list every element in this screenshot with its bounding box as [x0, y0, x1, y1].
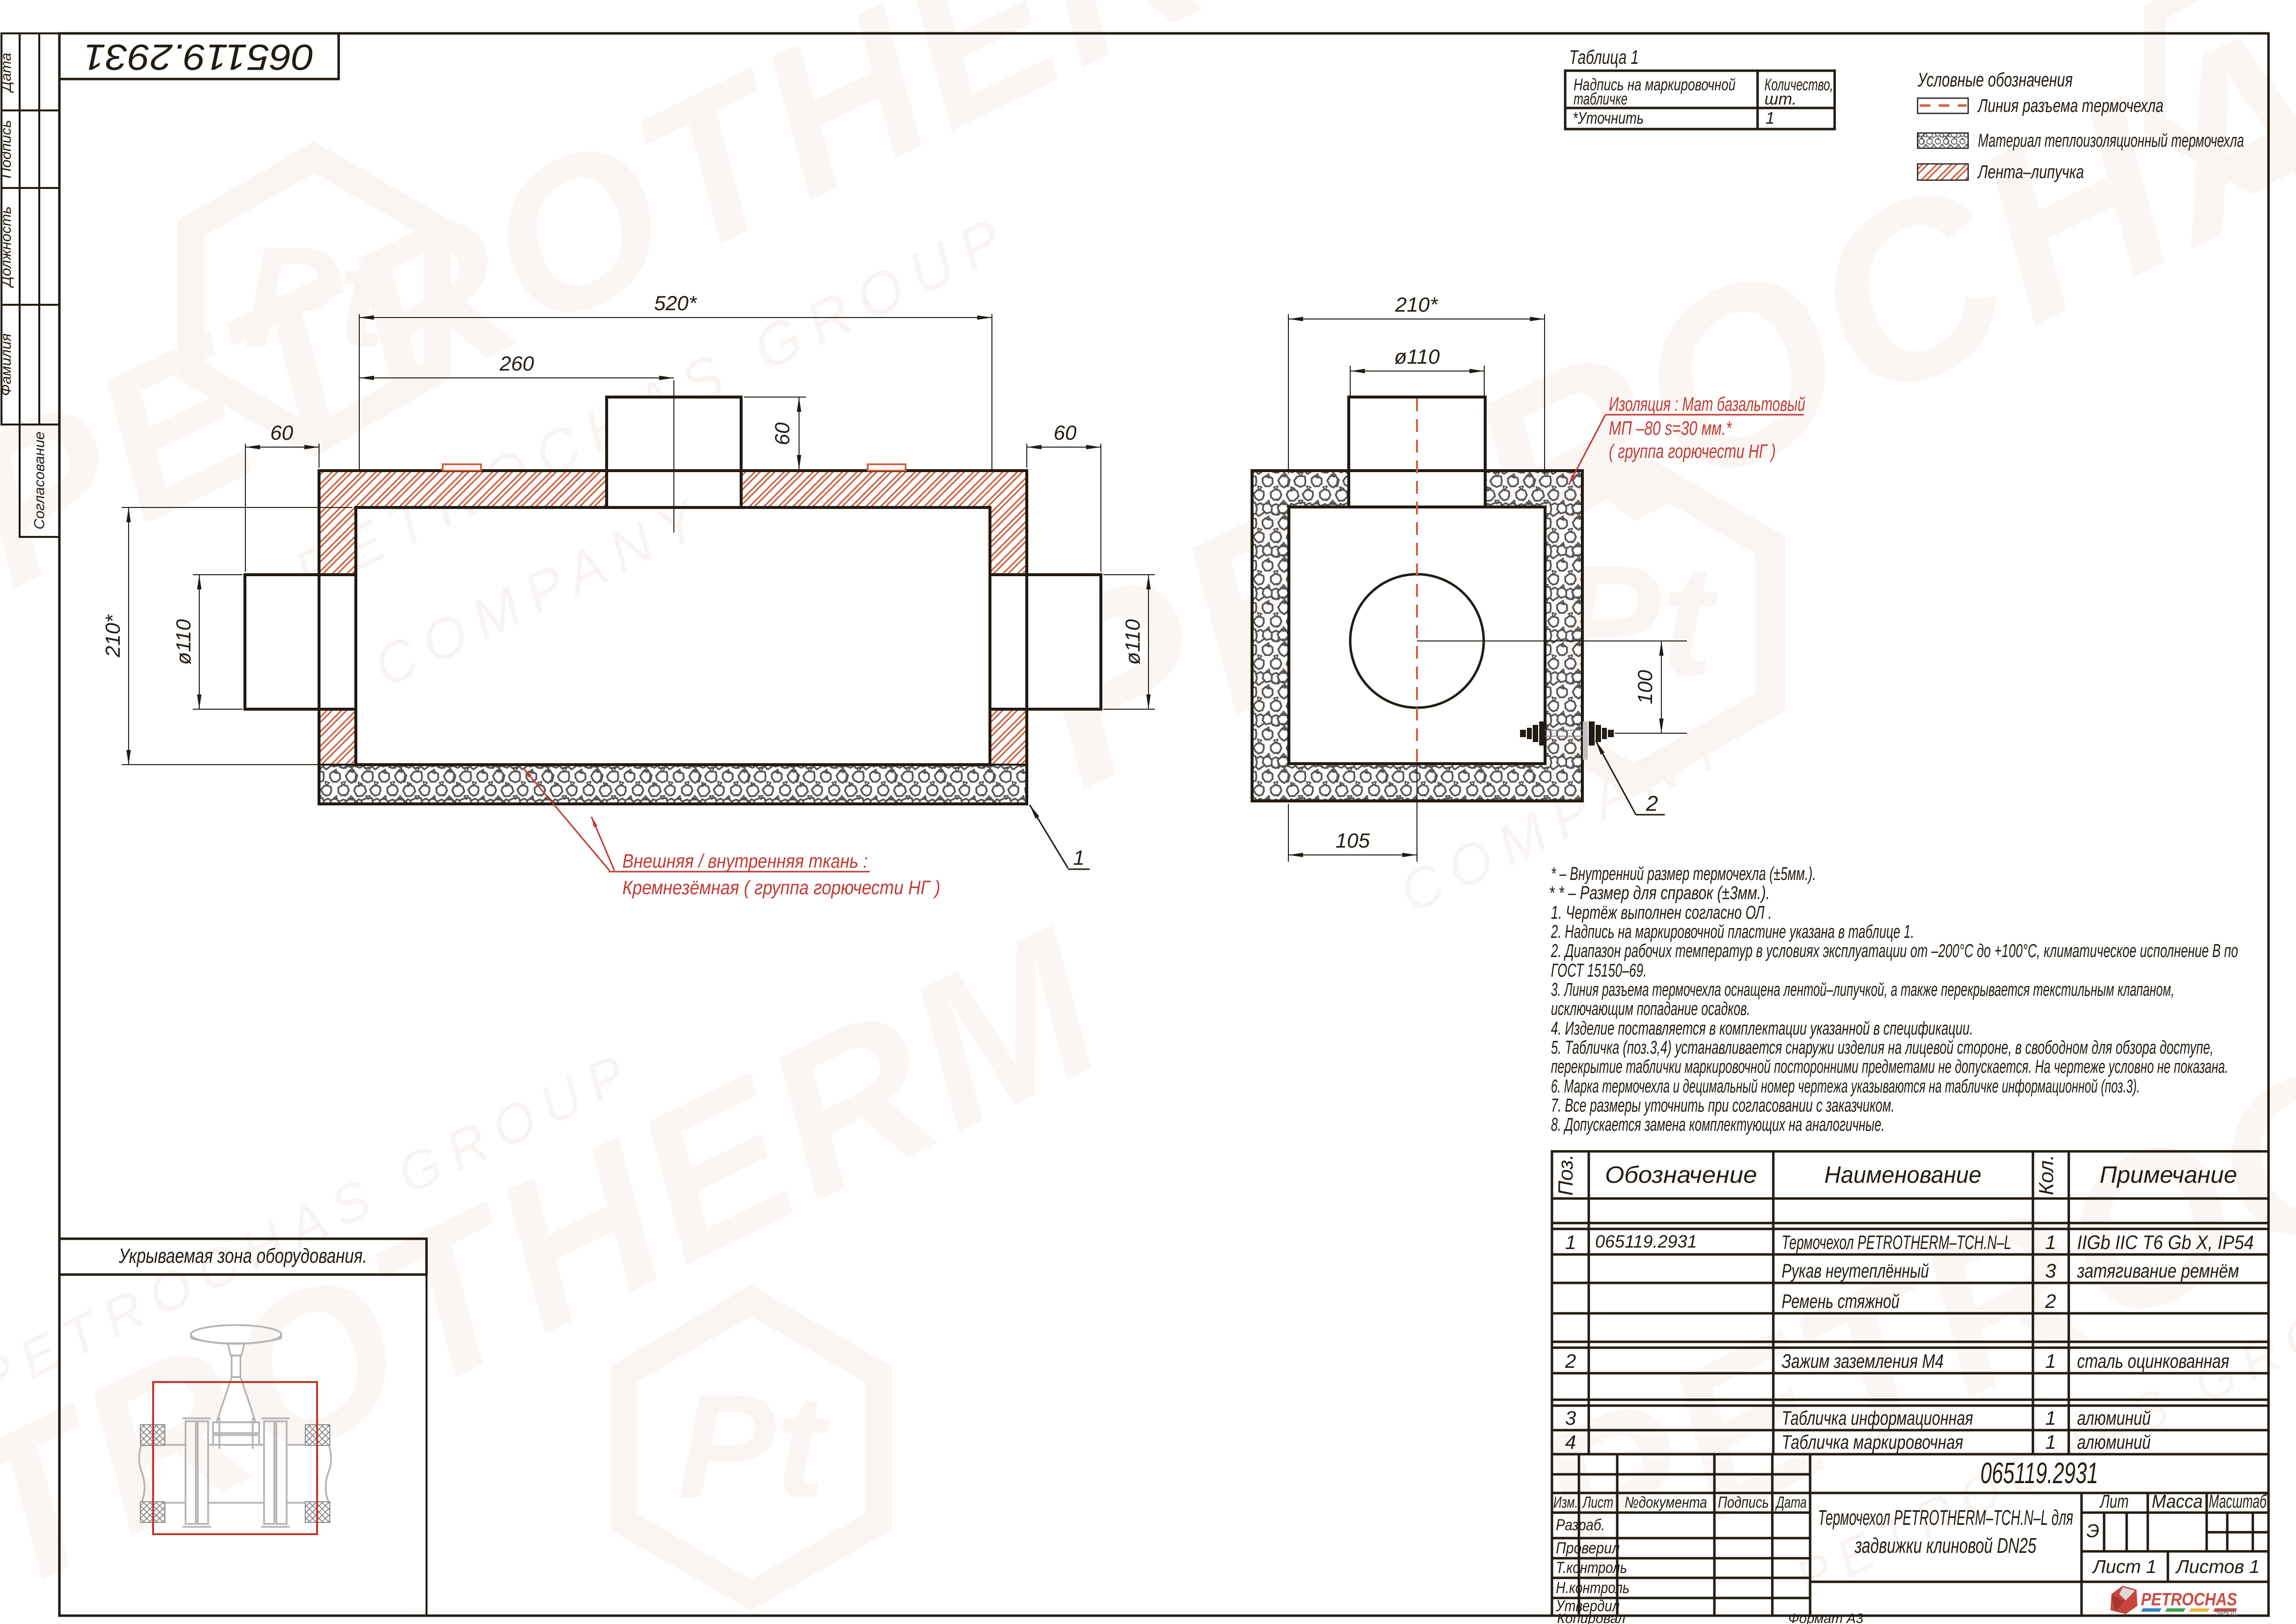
svg-text:Листов 1: Листов 1	[2175, 1557, 2260, 1577]
svg-text:Дата: Дата	[0, 53, 14, 93]
svg-text:Термочехол PETROTHERM–TCH.N–L: Термочехол PETROTHERM–TCH.N–L для	[1818, 1506, 2073, 1530]
svg-text:260: 260	[499, 352, 534, 375]
svg-text:IIGb IIC T6 Gb X, IP54: IIGb IIC T6 Gb X, IP54	[2077, 1232, 2254, 1253]
svg-text:Н.контроль: Н.контроль	[1556, 1579, 1629, 1597]
svg-text:Табличка маркировочная: Табличка маркировочная	[1782, 1432, 1963, 1453]
svg-text:065119.2931: 065119.2931	[1980, 1457, 2098, 1490]
svg-text:1: 1	[1073, 846, 1084, 869]
svg-text:Дата: Дата	[1775, 1493, 1807, 1511]
svg-text:3. Линия разъема термочехла ос: 3. Линия разъема термочехла оснащена лен…	[1551, 980, 2174, 1000]
svg-text:Масса: Масса	[2152, 1491, 2203, 1512]
svg-text:Условные обозначения: Условные обозначения	[1917, 69, 2073, 91]
svg-text:* * – Размер для справок (±3мм: * * – Размер для справок (±3мм.).	[1549, 883, 1770, 904]
svg-text:Кремнезёмная ( группа горючес: Кремнезёмная ( группа горючести НГ )	[622, 877, 940, 899]
svg-text:60: 60	[771, 422, 794, 445]
svg-text:Табличка информационная: Табличка информационная	[1782, 1408, 1973, 1429]
svg-text:1: 1	[2045, 1408, 2056, 1429]
svg-text:Лента–липучка: Лента–липучка	[1977, 162, 2084, 183]
svg-text:Т.контроль: Т.контроль	[1556, 1559, 1627, 1576]
svg-text:065119.2931: 065119.2931	[83, 37, 314, 78]
svg-text:Линия разъема термочехла: Линия разъема термочехла	[1977, 96, 2163, 116]
svg-text:Проверил: Проверил	[1556, 1539, 1620, 1557]
svg-text:* – Внутренний размер термочех: * – Внутренний размер термочехла (±5мм.)…	[1551, 864, 1816, 884]
svg-text:Укрываемая зона оборудования.: Укрываемая зона оборудования.	[118, 1244, 367, 1267]
svg-text:60: 60	[1054, 421, 1077, 444]
svg-text:алюминий: алюминий	[2077, 1408, 2151, 1429]
svg-text:2: 2	[1565, 1351, 1576, 1372]
svg-text:Термочехол PETROTHERM–TCH.N–L: Термочехол PETROTHERM–TCH.N–L	[1782, 1232, 2011, 1253]
svg-text:3: 3	[2045, 1260, 2056, 1282]
svg-text:Обозначение: Обозначение	[1605, 1162, 1757, 1188]
svg-text:Рукав неутеплённый: Рукав неутеплённый	[1782, 1260, 1929, 1282]
svg-text:1: 1	[2045, 1351, 2056, 1372]
svg-text:1: 1	[2045, 1232, 2056, 1253]
svg-text:Поз.: Поз.	[1554, 1154, 1577, 1196]
svg-text:Фамилия: Фамилия	[0, 333, 14, 396]
svg-text:табличке: табличке	[1574, 90, 1628, 108]
svg-text:Материал теплоизоляционный тер: Материал теплоизоляционный термочехла	[1978, 131, 2244, 151]
svg-text:задвижки клиновой DN25: задвижки клиновой DN25	[1854, 1534, 2036, 1558]
svg-text:ГОСТ 15150–69.: ГОСТ 15150–69.	[1551, 960, 1647, 981]
svg-text:Подпись: Подпись	[1718, 1493, 1769, 1511]
svg-text:2: 2	[1646, 792, 1658, 816]
svg-text:PETROCHAS: PETROCHAS	[2141, 1589, 2237, 1609]
svg-text:2: 2	[2045, 1291, 2056, 1312]
svg-text:5. Табличка (поз.3,4) устанавл: 5. Табличка (поз.3,4) устанавливается сн…	[1551, 1038, 2214, 1058]
svg-text:исключающим попадание осадков.: исключающим попадание осадков.	[1551, 999, 1750, 1019]
svg-text:Лит: Лит	[2099, 1491, 2129, 1512]
svg-text:ø110: ø110	[1121, 619, 1144, 665]
svg-text:шт.: шт.	[1764, 90, 1797, 108]
svg-text:210*: 210*	[1395, 293, 1439, 316]
svg-text:Разраб.: Разраб.	[1556, 1516, 1605, 1534]
svg-text:1: 1	[1765, 109, 1775, 128]
svg-text:Ремень стяжной: Ремень стяжной	[1782, 1291, 1899, 1312]
svg-text:Должность: Должность	[0, 206, 14, 288]
svg-text:3: 3	[1565, 1408, 1576, 1429]
svg-text:алюминий: алюминий	[2077, 1432, 2151, 1453]
svg-text:ø110: ø110	[172, 619, 195, 665]
svg-text:Лист 1: Лист 1	[2091, 1557, 2157, 1577]
svg-text:ø110: ø110	[1394, 345, 1440, 368]
svg-text:105: 105	[1335, 829, 1370, 852]
svg-text:Подпись: Подпись	[0, 120, 14, 179]
svg-text:1: 1	[1565, 1232, 1576, 1253]
svg-text:*Уточнить: *Уточнить	[1573, 109, 1644, 128]
svg-text:МП –80 s=30 мм.*: МП –80 s=30 мм.*	[1609, 418, 1732, 439]
svg-text:8. Допускается замена комплект: 8. Допускается замена комплектующих на а…	[1551, 1115, 1885, 1135]
svg-text:1: 1	[2045, 1432, 2056, 1453]
svg-text:Копировал: Копировал	[1557, 1611, 1625, 1624]
svg-text:Зажим заземления М4: Зажим заземления М4	[1782, 1351, 1944, 1372]
svg-text:60: 60	[270, 421, 294, 444]
svg-text:Примечание: Примечание	[2100, 1162, 2237, 1188]
svg-text:затягивание ремнём: затягивание ремнём	[2077, 1260, 2239, 1282]
svg-text:Pt: Pt	[677, 1363, 831, 1528]
svg-text:210*: 210*	[101, 614, 124, 658]
svg-text:Изоляция : Мат базальтовый: Изоляция : Мат базальтовый	[1609, 394, 1805, 415]
svg-text:Внешняя / внутренняя ткань :: Внешняя / внутренняя ткань :	[622, 851, 868, 872]
svg-text:7. Все размеры уточнить при со: 7. Все размеры уточнить при согласовании…	[1551, 1095, 1895, 1116]
svg-text:перекрытие таблички маркировоч: перекрытие таблички маркировочной постор…	[1551, 1057, 2228, 1077]
svg-text:Наименование: Наименование	[1824, 1162, 1981, 1188]
svg-text:1. Чертёж выполнен согласно ОЛ: 1. Чертёж выполнен согласно ОЛ .	[1551, 903, 1772, 923]
svg-text:4. Изделие поставляется в комп: 4. Изделие поставляется в комплектации у…	[1551, 1018, 1973, 1039]
svg-text:065119.2931: 065119.2931	[1595, 1231, 1697, 1251]
svg-text:Изм.: Изм.	[1553, 1493, 1578, 1511]
svg-text:Формат А3: Формат А3	[1788, 1611, 1864, 1624]
svg-text:сталь оцинкованная: сталь оцинкованная	[2077, 1351, 2229, 1372]
svg-text:2. Диапазон рабочих температур: 2. Диапазон рабочих температур в условия…	[1550, 941, 2238, 961]
svg-text:( группа горючести НГ ): ( группа горючести НГ )	[1609, 441, 1776, 462]
svg-text:Масштаб: Масштаб	[2209, 1491, 2267, 1512]
svg-text:100: 100	[1633, 669, 1656, 704]
svg-text:Согласование: Согласование	[31, 431, 48, 530]
svg-text:Э: Э	[2086, 1521, 2099, 1542]
svg-text:4: 4	[1565, 1432, 1576, 1453]
svg-text:№документа: №документа	[1625, 1493, 1707, 1511]
svg-text:Кол.: Кол.	[2034, 1155, 2057, 1196]
svg-text:Таблица 1: Таблица 1	[1569, 47, 1639, 68]
svg-text:6. Марка термочехла и децималь: 6. Марка термочехла и децимальный номер …	[1551, 1076, 2140, 1097]
svg-text:Pt: Pt	[243, 217, 391, 376]
svg-text:ЗАВОД: ЗАВОД	[2215, 1608, 2237, 1617]
svg-text:2. Надпись на маркировочной пл: 2. Надпись на маркировочной пластине ука…	[1550, 922, 1914, 942]
svg-text:520*: 520*	[654, 292, 697, 315]
svg-text:Лист: Лист	[1582, 1493, 1613, 1511]
